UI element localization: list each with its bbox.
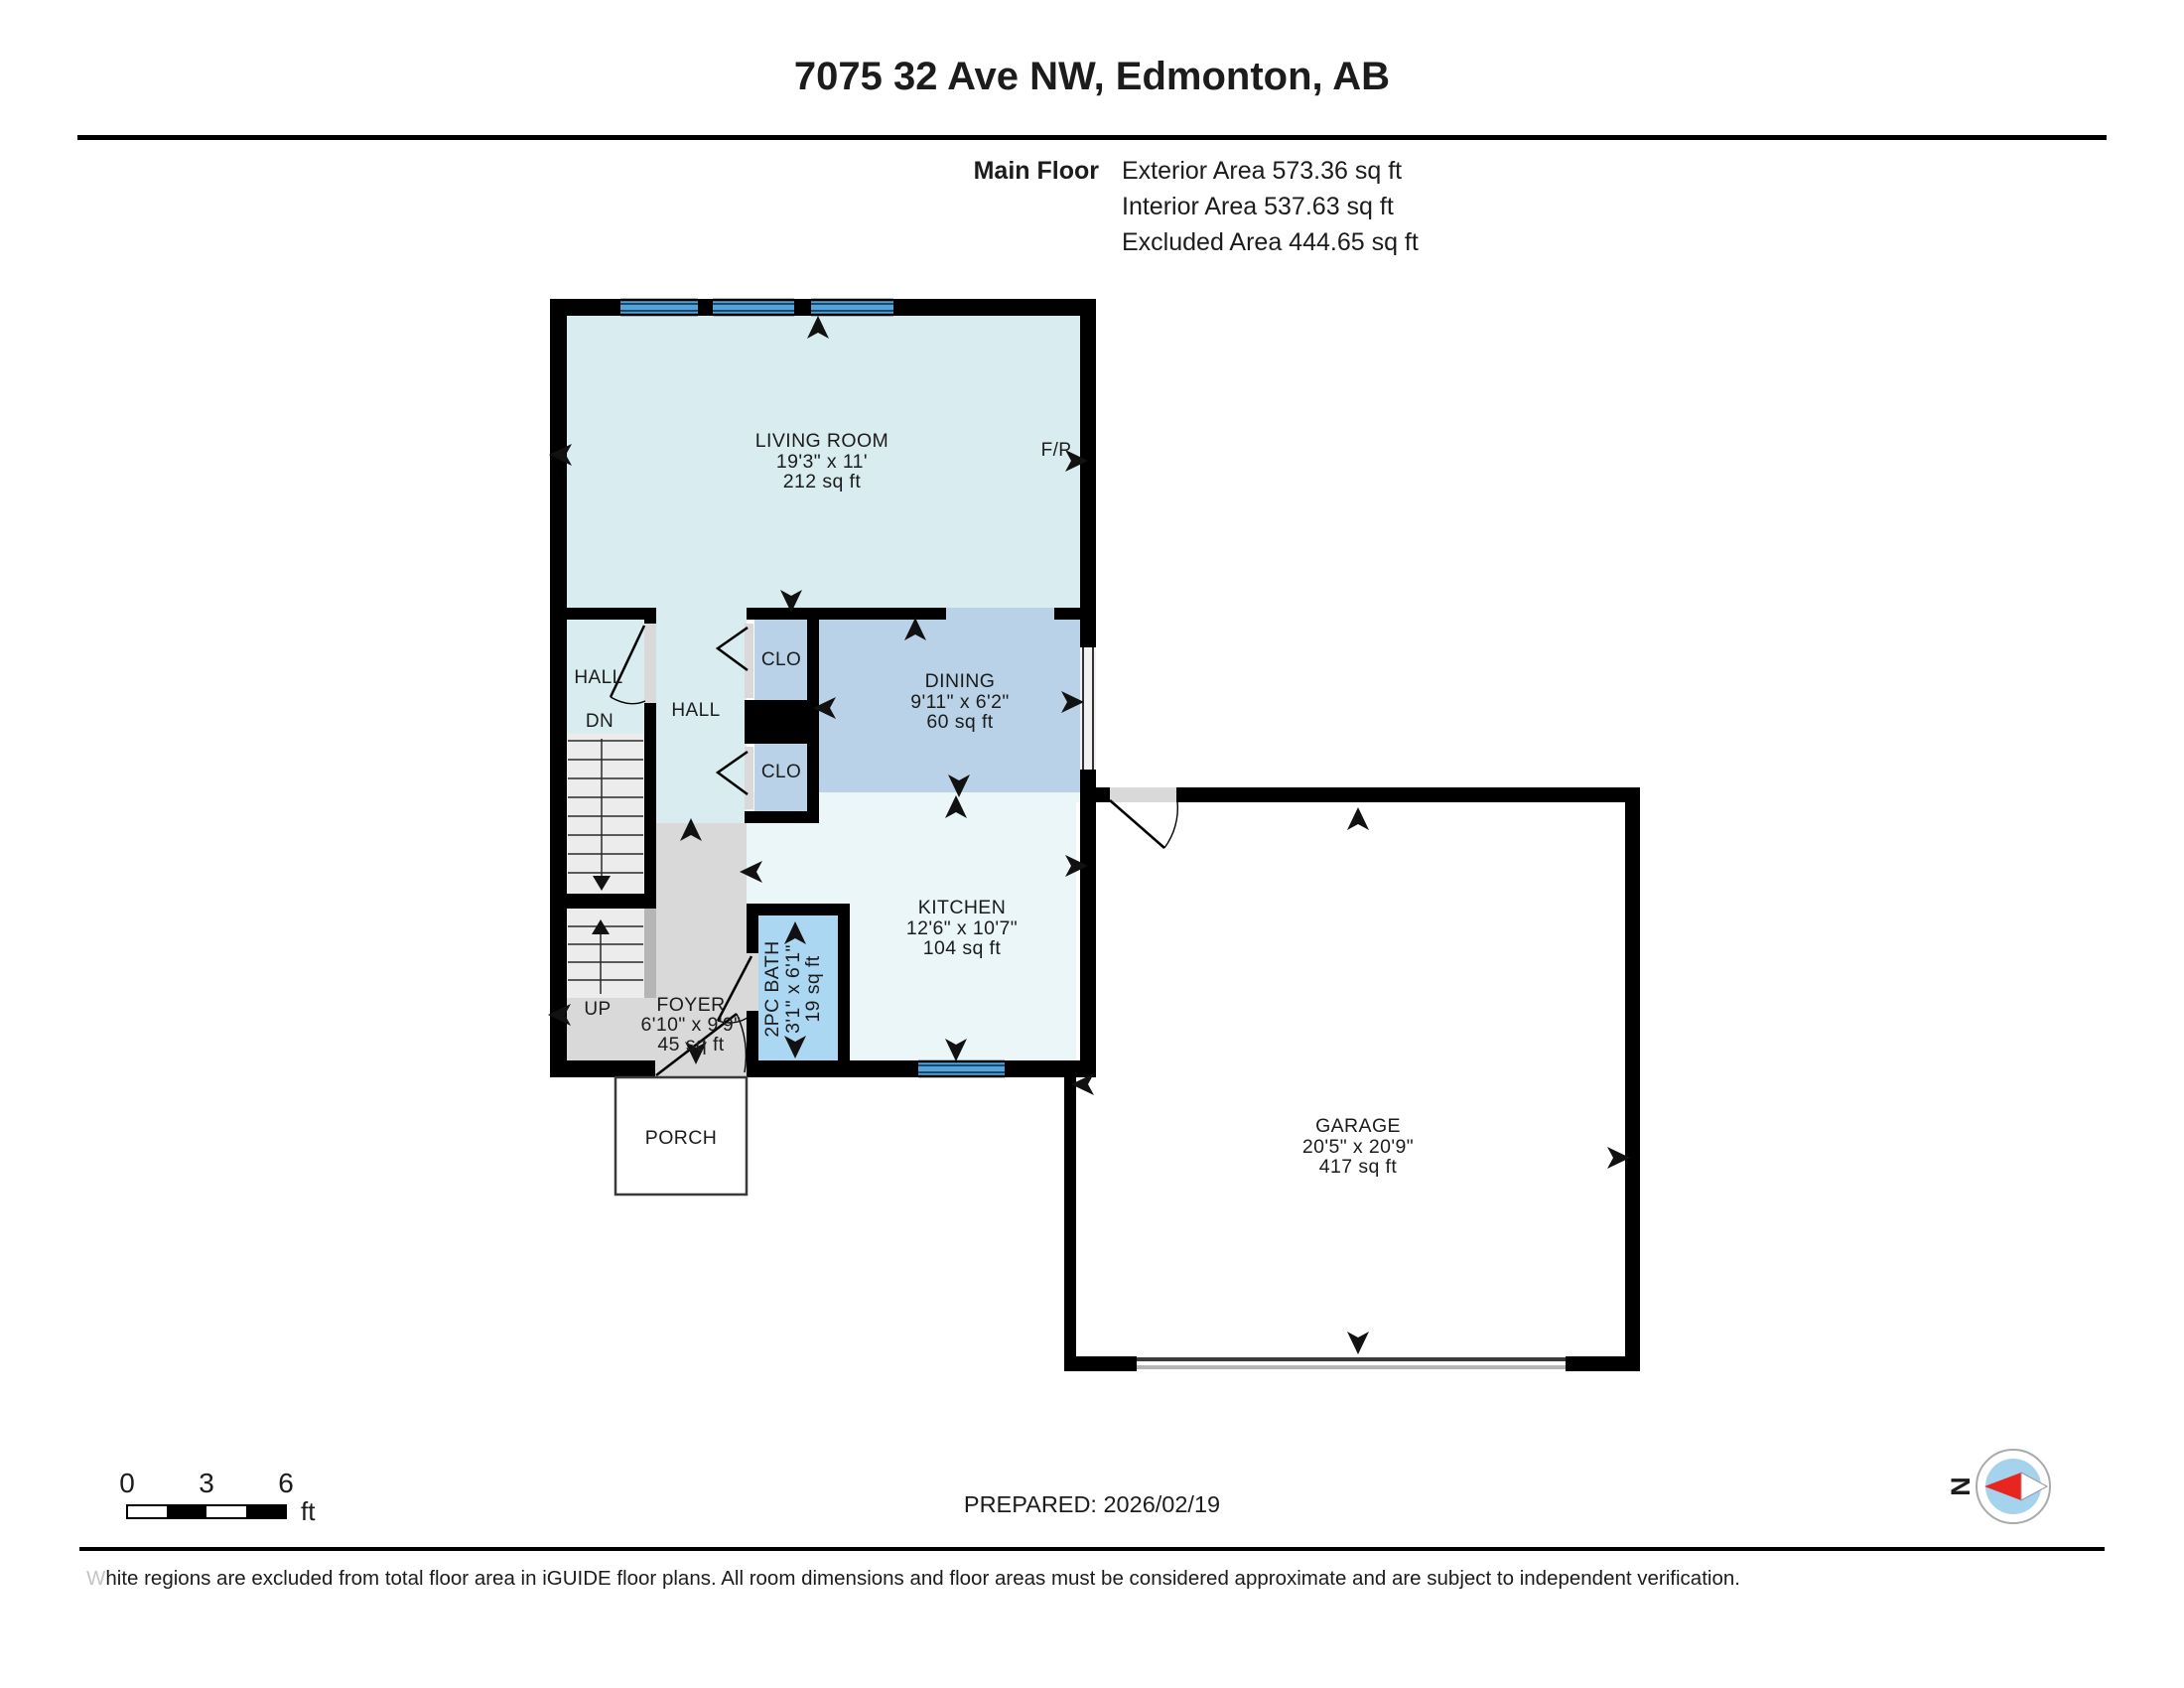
scale-tick-0: 0 [119, 1468, 135, 1498]
garage-name: GARAGE [1315, 1115, 1401, 1137]
wall-stair-divider [550, 894, 656, 909]
hall-left-label: HALL [574, 667, 622, 688]
stairs-up [567, 909, 656, 998]
porch-label: PORCH [645, 1127, 717, 1149]
floorplan-page: 7075 32 Ave NW, Edmonton, AB Main Floor … [0, 0, 2184, 1688]
footer-divider [79, 1547, 2105, 1551]
dining-window [1080, 647, 1096, 770]
closet-wall-bottom [745, 811, 819, 823]
dining-name: DINING [925, 670, 996, 692]
living-name: LIVING ROOM [755, 430, 888, 452]
living-window-3 [811, 299, 893, 316]
kitchen-area-label: 104 sq ft [923, 937, 1002, 959]
closet-wall-mid [745, 700, 819, 744]
kitchen-window [918, 1060, 1005, 1077]
garage-area-label: 417 sq ft [1319, 1156, 1398, 1178]
garage-wall-east [1625, 787, 1640, 1371]
scale-bar-seg-1 [167, 1505, 206, 1518]
scale-unit: ft [301, 1496, 316, 1526]
stairs-up-handrail [644, 909, 656, 998]
garage-wall-west [1064, 1072, 1076, 1366]
living-area-label: 212 sq ft [783, 471, 862, 492]
living-window-1 [620, 299, 698, 316]
footer-disclaimer: White regions are excluded from total fl… [86, 1567, 1740, 1590]
kitchen-name: KITCHEN [918, 897, 1006, 918]
garage-dims: 20'5" x 20'9" [1302, 1136, 1414, 1158]
wall-south [550, 1060, 1096, 1077]
wall-living-bottom-mid [747, 608, 946, 620]
garage-door-line-2 [1137, 1365, 1566, 1369]
fireplace-label: F/P [1041, 440, 1072, 461]
compass-north-label: N [1946, 1477, 1976, 1496]
bath-name: 2PC BATH [761, 940, 783, 1037]
stairs-down [567, 734, 644, 894]
footer-first-letter: W [86, 1567, 106, 1590]
prepared-date: PREPARED: 2026/02/19 [964, 1491, 1220, 1517]
wall-living-bottom-left [550, 608, 645, 620]
wall-west [550, 299, 567, 1077]
wall-living-bottom-stub [1054, 608, 1080, 620]
scale-bar-seg-2 [246, 1505, 286, 1518]
living-window-2 [713, 299, 794, 316]
bath-area-label: 19 sq ft [802, 955, 824, 1022]
dining-dims: 9'11" x 6'2" [910, 691, 1009, 713]
stairs-up-fill [567, 909, 644, 998]
compass: N [1946, 1450, 2050, 1523]
page-title: 7075 32 Ave NW, Edmonton, AB [794, 55, 1390, 98]
scale-tick-3: 3 [199, 1468, 214, 1498]
up-label: UP [584, 999, 611, 1020]
closet-bottom-jamb [745, 747, 753, 809]
hall-label: HALL [671, 700, 720, 721]
floorplan-canvas: 7075 32 Ave NW, Edmonton, AB Main Floor … [0, 0, 2184, 1688]
bath-wall-right [838, 904, 850, 1063]
foyer-dims: 6'10" x 9'9" [641, 1014, 742, 1036]
dn-label: DN [586, 711, 614, 732]
stairs-down-fill [567, 734, 644, 894]
foyer-area-label: 45 sq ft [657, 1034, 724, 1055]
closet-bottom-label: CLO [761, 762, 801, 782]
kitchen-dims: 12'6" x 10'7" [906, 917, 1018, 939]
scale-bar: 0 3 6 ft [119, 1468, 316, 1526]
living-dims: 19'3" x 11' [776, 451, 868, 473]
bath-dims: 3'1" x 6'1" [782, 944, 804, 1034]
foyer-name: FOYER [656, 994, 725, 1016]
excluded-area-text: Excluded Area 444.65 sq ft [1122, 228, 1419, 256]
bath-wall-top [747, 904, 850, 915]
scale-tick-6: 6 [278, 1468, 294, 1498]
exterior-area-text: Exterior Area 573.36 sq ft [1122, 157, 1402, 185]
garage-area [1076, 802, 1625, 1356]
interior-area-text: Interior Area 537.63 sq ft [1122, 193, 1394, 220]
garage-wall-north [1096, 787, 1640, 802]
garage-door-line-1 [1137, 1357, 1566, 1361]
closet-top-jamb [745, 624, 753, 698]
closet-top-label: CLO [761, 649, 801, 670]
footer-text: hite regions are excluded from total flo… [105, 1567, 1740, 1590]
header-divider [77, 135, 2107, 140]
dining-area-label: 60 sq ft [926, 711, 993, 733]
floor-label: Main Floor [974, 157, 1100, 185]
